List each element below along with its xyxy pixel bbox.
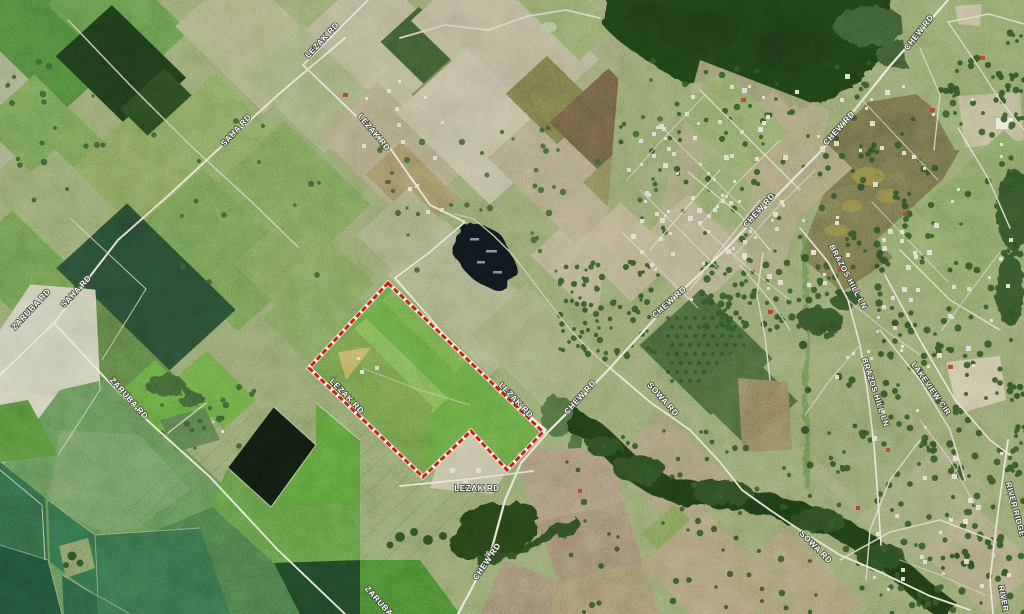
svg-text:LEZAK RD: LEZAK RD xyxy=(454,484,499,493)
